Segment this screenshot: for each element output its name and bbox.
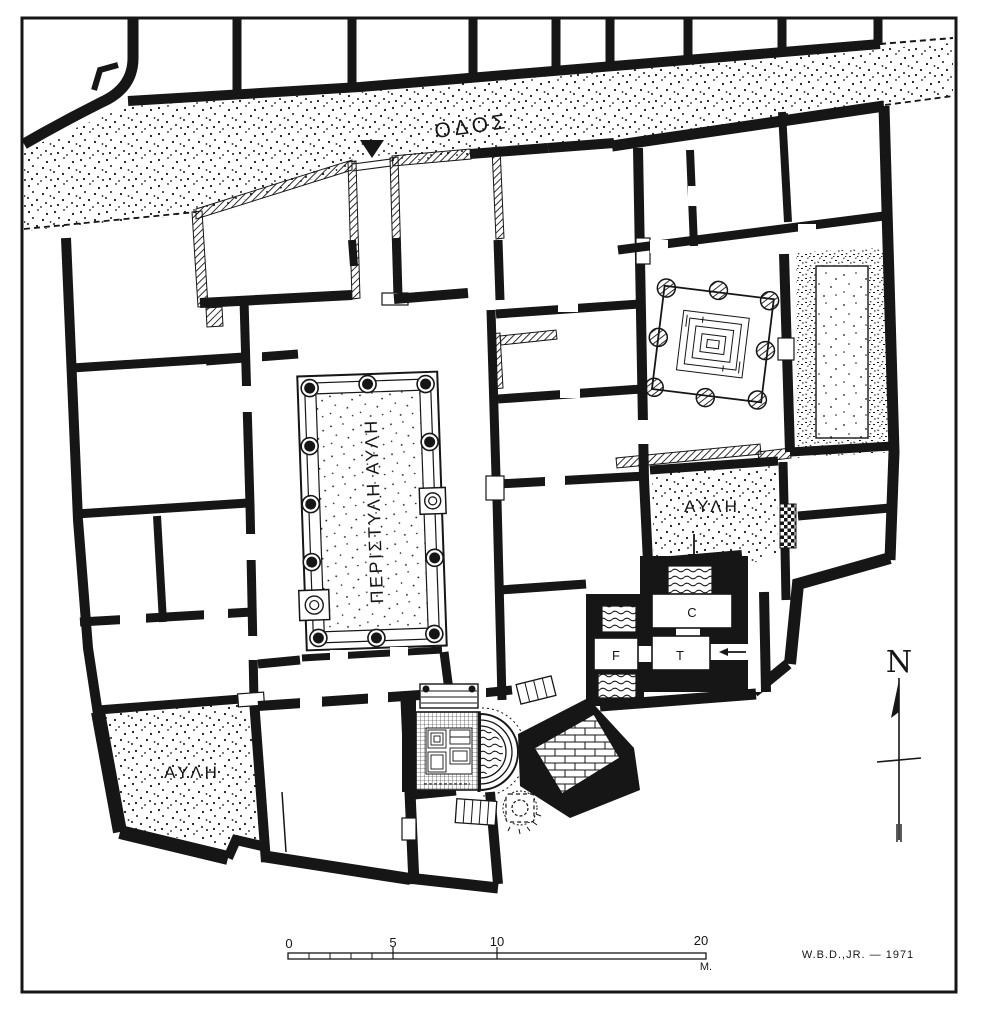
court-left-label: ΑΥΛΗ [164, 763, 220, 782]
furnace [598, 674, 636, 698]
street-surface [24, 43, 953, 231]
peristyle-court: ΠΕΡΙΣΤΥΛΗ ΑΥΛΗ [291, 372, 450, 651]
north-arrow: N [877, 645, 921, 842]
court-left: ΑΥΛΗ [98, 692, 266, 862]
furnace [602, 606, 636, 632]
signature: W.B.D.,JR. — 1971 [802, 949, 914, 961]
west-wing-walls [66, 238, 254, 714]
scale-unit: M. [700, 961, 712, 973]
bath-room-f-label: F [612, 648, 620, 663]
north-label: N [886, 645, 912, 680]
column-court-mosaic [642, 274, 782, 414]
north-arrow-barb [891, 680, 899, 718]
well-head [299, 590, 330, 621]
scale-tick-20: 20 [694, 933, 708, 948]
street: ΟΔΟΣ [24, 43, 953, 231]
floor-plan-drawing: ΟΔΟΣ [0, 0, 987, 1024]
round-basin [503, 791, 541, 834]
bath-room-c-label: C [687, 605, 696, 620]
mosaic-room [402, 684, 480, 792]
bath-suite: C T F [586, 556, 766, 706]
court-right-label: ΑΥΛΗ [684, 497, 740, 516]
scale-tick-5: 5 [389, 935, 396, 950]
stairs [516, 676, 556, 704]
scale-tick-10: 10 [490, 934, 504, 949]
stairs [455, 799, 497, 826]
scale-tick-0: 0 [285, 936, 292, 951]
apse-pool [479, 708, 526, 796]
well-head [419, 487, 446, 514]
garden-plot [796, 248, 892, 458]
bath-room-t-label: T [676, 648, 684, 663]
furnace [668, 566, 712, 594]
scale-bar: 0 5 10 20 M. [285, 933, 712, 973]
checker-wall [780, 504, 796, 548]
plan-sheet: ΟΔΟΣ [0, 0, 987, 1024]
